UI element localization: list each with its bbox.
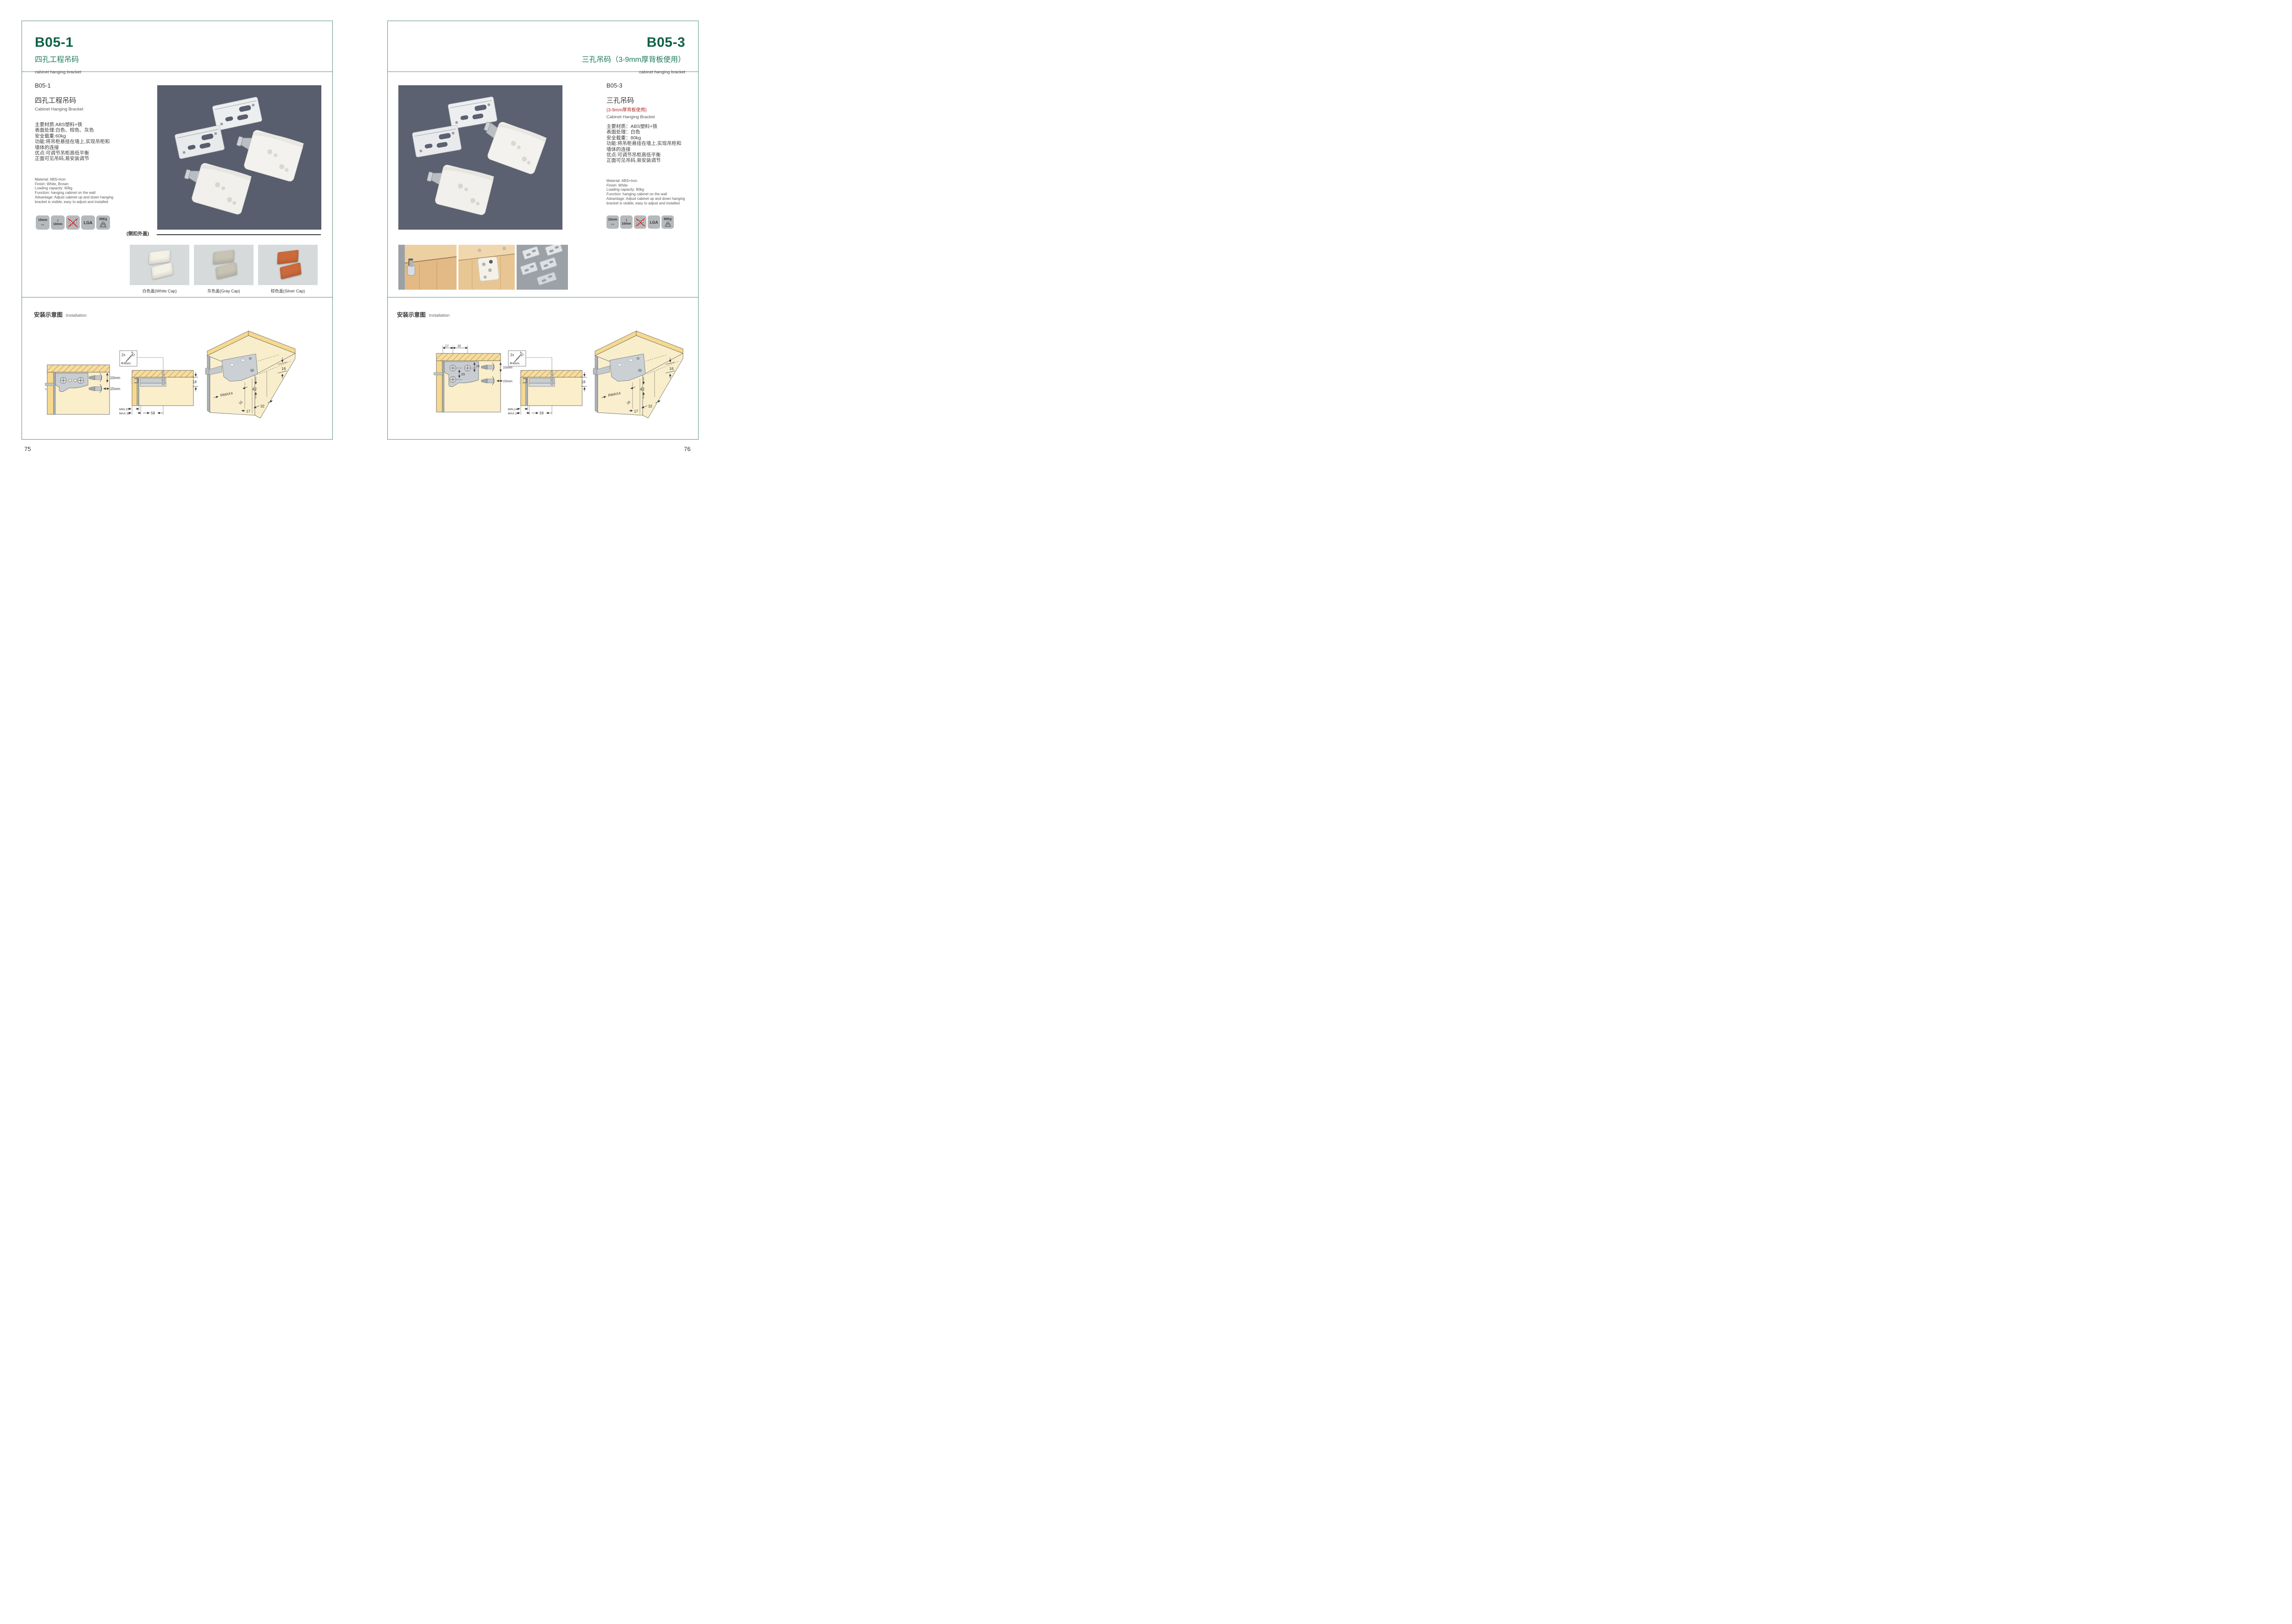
- spec-line: Function: hanging cabinet on the wall: [606, 192, 685, 197]
- spec-line: 功能:将吊柜悬挂在墙上,实现吊柜和: [606, 141, 681, 146]
- screw-size: Φ4mm: [121, 362, 131, 365]
- page-title-zh: 四孔工程吊码: [35, 53, 81, 64]
- spec-line: 优点:可调节吊柜高低平衡: [606, 152, 681, 158]
- specs-en: Material: ABS+Iron Finish: White, Brown …: [35, 177, 113, 204]
- diagram-svg: 16 42 RMAX4 16 17 32: [201, 327, 297, 419]
- product-photo-image: [157, 85, 321, 230]
- catalog-page-b05-3: B05-3 三孔吊码（3-9mm厚背板使用） cabinet hanging b…: [387, 21, 699, 440]
- page-header: B05-3 三孔吊码（3-9mm厚背板使用） cabinet hanging b…: [582, 36, 685, 75]
- feature-icons-row: 15mm ↔ ↕ 10mm LGA 60Kg: [36, 215, 110, 230]
- dim-label: 42: [640, 387, 645, 391]
- no-drill-icon: [67, 217, 78, 228]
- header-divider: [22, 72, 332, 72]
- screw-qty: 2x: [121, 353, 125, 357]
- phillips-screw: [78, 378, 84, 384]
- icon-tile-height: ↕ 10mm: [620, 215, 633, 229]
- vertical-arrow-icon: ↕: [57, 219, 59, 223]
- cap-label-gray: 灰色盖(Gray Cap): [194, 288, 253, 294]
- phillips-screw: [450, 377, 456, 383]
- product-code: B05-1: [35, 82, 51, 89]
- cert-label: LGA: [650, 220, 658, 224]
- cap-shape-top: [149, 250, 170, 264]
- spec-line: Material: ABS+Iron: [606, 179, 685, 183]
- product-photo: [157, 85, 321, 230]
- page-header: B05-1 四孔工程吊码 cabinet hanging bracket: [35, 36, 81, 75]
- spec-line: Material: ABS+Iron: [35, 177, 113, 182]
- spec-line: Function: hanging cabinet on the wall: [35, 191, 113, 195]
- dim-label: 58: [540, 411, 544, 415]
- installation-heading: 安装示意图Installation: [397, 310, 450, 319]
- white-bracket: [478, 257, 499, 281]
- application-photo-image: [398, 245, 457, 290]
- caps-section-label: (侧扣外盖): [127, 230, 149, 237]
- installation-heading: 安装示意图Installation: [34, 310, 87, 319]
- dim-label: 17: [634, 409, 638, 413]
- cap-label-white: 白色盖(White Cap): [130, 288, 189, 294]
- icon-tile-cert: LGA: [648, 215, 660, 229]
- page-title-zh: 三孔吊码（3-9mm厚背板使用）: [582, 53, 685, 64]
- spec-line: 表面处理：白色: [606, 129, 681, 135]
- screw-size: Φ4mm: [510, 362, 519, 365]
- application-photo-bracket: [458, 245, 515, 290]
- application-photo-plates: [517, 245, 568, 290]
- spec-line: 安全载重:60kg: [35, 133, 110, 139]
- icon-tile-no-drill: [66, 215, 80, 230]
- dim-label: 16: [281, 366, 286, 371]
- spec-line: Advantage: Adjust cabinet up and down ha…: [35, 195, 113, 200]
- icon-tile-width: 15mm ↔: [606, 215, 619, 229]
- dim-label: MIN.14: [508, 408, 518, 411]
- specs-zh: 主要材质：ABS塑料+铁 表面处理：白色 安全载重：80kg 功能:将吊柜悬挂在…: [606, 124, 681, 164]
- cap-photo-gray: [194, 245, 253, 285]
- height-value: 10mm: [53, 223, 62, 226]
- page-title-code: B05-3: [582, 36, 685, 50]
- dim-label: 17: [445, 345, 449, 348]
- product-photo-image: [398, 85, 562, 230]
- installation-label-en: Installation: [66, 313, 87, 318]
- diagram-svg: 16 42 RMAX4 18 17 32: [589, 327, 685, 419]
- spec-line: Advantage: Adjust cabinet up and down ha…: [606, 197, 685, 201]
- installation-diagram-perspective: 16 42 RMAX4 18 17 32: [589, 327, 685, 421]
- spec-line: Finish: White, Brown: [35, 182, 113, 187]
- icon-tile-width: 15mm ↔: [36, 215, 50, 230]
- product-name-zh: 三孔吊码: [606, 95, 655, 105]
- weight-icon: [664, 221, 672, 227]
- phillips-screw: [465, 365, 471, 371]
- cap-shape-bottom: [280, 262, 301, 279]
- installation-diagram-perspective: 16 42 RMAX4 16 17 32: [201, 327, 297, 421]
- installation-diagram-section: 10mm 15mm: [45, 361, 121, 419]
- spec-line: 主要材质：ABS塑料+铁: [606, 124, 681, 129]
- spec-line: 优点:可调节吊柜高低平衡: [35, 150, 110, 156]
- spec-line: bracket is visible, easy to adjust and i…: [35, 200, 113, 204]
- product-name-note: (3-9mm厚背板使用): [606, 106, 655, 113]
- page-title-code: B05-1: [35, 36, 81, 50]
- caps-section-line: [157, 234, 321, 235]
- page-number-left: 75: [24, 446, 31, 452]
- icon-tile-height: ↕ 10mm: [51, 215, 65, 230]
- dim-label: MAX.23: [119, 412, 130, 415]
- screw-qty: 2x: [510, 353, 514, 357]
- spec-line: 主要材质:ABS塑料+铁: [35, 122, 110, 127]
- icon-tile-load: 60Kg: [96, 215, 110, 230]
- height-value: 10mm: [622, 222, 631, 226]
- installation-diagram-screw: 2x Φ4mm 18 MIN.14: [508, 350, 587, 420]
- catalog-page-b05-1: B05-1 四孔工程吊码 cabinet hanging bracket B05…: [22, 21, 333, 440]
- application-photo-image: [517, 245, 568, 290]
- section-divider: [388, 297, 698, 297]
- installation-label-zh: 安装示意图: [397, 312, 426, 318]
- spec-line: bracket is visible, easy to adjust and i…: [606, 201, 685, 206]
- dim-label: 18: [581, 380, 585, 384]
- dim-label: 17: [246, 409, 250, 413]
- application-photo-hook: [398, 245, 457, 290]
- dim-label: 18: [193, 380, 197, 384]
- product-name-zh: 四孔工程吊码: [35, 95, 83, 105]
- diagram-svg: 2x Φ4mm 18 MIN.14: [508, 350, 587, 418]
- dim-label: 32: [457, 345, 461, 348]
- product-name-en: Cabinet Hanging Bracket: [606, 115, 655, 120]
- spec-line: 正面可见吊码,易安装调节: [35, 156, 110, 161]
- load-value: 80Kg: [664, 218, 672, 221]
- installation-diagram-screw: 2x Φ4mm 18 MIN.10: [119, 350, 198, 420]
- cap-photo-brown: [258, 245, 318, 285]
- product-name-block: 三孔吊码 (3-9mm厚背板使用) Cabinet Hanging Bracke…: [606, 95, 655, 120]
- spec-line: 安全载重：80kg: [606, 135, 681, 141]
- dim-label: 32: [260, 404, 264, 408]
- product-name-en: Cabinet Hanging Bracket: [35, 107, 83, 112]
- spec-line: 表面处理:白色、棕色、灰色: [35, 127, 110, 133]
- page-number-right: 76: [684, 446, 690, 452]
- dim-label: 16: [669, 366, 674, 371]
- specs-en: Material: ABS+Iron Finish: White Loading…: [606, 179, 685, 205]
- spec-line: 正面可见吊码,易安装调节: [606, 158, 681, 163]
- horizontal-arrow-icon: ↔: [40, 222, 45, 226]
- load-value: 60Kg: [99, 218, 107, 221]
- cap-shape-top: [213, 250, 234, 264]
- dim-label: 58: [151, 411, 155, 415]
- product-photo: [398, 85, 562, 230]
- specs-zh: 主要材质:ABS塑料+铁 表面处理:白色、棕色、灰色 安全载重:60kg 功能:…: [35, 122, 110, 162]
- spec-line: Loading capacity: 60kg: [35, 186, 113, 191]
- no-drill-icon: [635, 217, 645, 227]
- diagram-svg: 10mm 15mm: [45, 361, 121, 417]
- cap-photo-white: [130, 245, 189, 285]
- installation-label-en: Installation: [429, 313, 450, 318]
- dim-label: MAX.24: [508, 412, 519, 415]
- vertical-arrow-icon: ↕: [625, 218, 628, 222]
- cap-shape-top: [277, 250, 298, 264]
- dim-label: 42: [252, 387, 257, 391]
- phillips-screw: [450, 365, 456, 371]
- dim-label: 25: [461, 372, 465, 376]
- cap-shape-bottom: [151, 262, 173, 279]
- spec-line: 墙体的连接: [606, 147, 681, 152]
- icon-tile-cert: LGA: [81, 215, 95, 230]
- phillips-screw: [61, 378, 66, 384]
- installation-label-zh: 安装示意图: [34, 312, 63, 318]
- cert-label: LGA: [84, 221, 93, 225]
- dim-label: MIN.10: [119, 408, 129, 411]
- spec-line: 功能:将吊柜悬挂在墙上,实现吊柜和: [35, 139, 110, 144]
- weight-icon: [99, 221, 108, 227]
- page-subtitle: cabinet hanging bracket: [582, 70, 685, 75]
- product-name-block: 四孔工程吊码 Cabinet Hanging Bracket: [35, 95, 83, 112]
- horizontal-arrow-icon: ↔: [611, 222, 615, 226]
- cap-label-brown: 棕色盖(Silver Cap): [258, 288, 318, 294]
- installation-diagram-section: 17 32 16: [434, 344, 514, 420]
- spec-line: Loading capacity: 80kg: [606, 187, 685, 192]
- icon-tile-no-drill: [634, 215, 646, 229]
- dim-label: 32: [648, 404, 652, 408]
- section-divider: [22, 297, 332, 297]
- header-divider: [388, 72, 698, 72]
- application-photo-image: [458, 245, 515, 290]
- diagram-svg: 17 32 16: [434, 344, 514, 418]
- diagram-svg: 2x Φ4mm 18 MIN.10: [119, 350, 198, 418]
- page-subtitle: cabinet hanging bracket: [35, 70, 81, 75]
- dim-label: 16: [476, 364, 479, 368]
- feature-icons-row: 15mm ↔ ↕ 10mm LGA 80Kg: [606, 215, 674, 229]
- spec-line: Finish: White: [606, 183, 685, 188]
- spec-line: 墙体的连接: [35, 145, 110, 150]
- product-code: B05-3: [606, 82, 623, 89]
- cap-shape-bottom: [215, 262, 237, 279]
- icon-tile-load: 80Kg: [661, 215, 674, 229]
